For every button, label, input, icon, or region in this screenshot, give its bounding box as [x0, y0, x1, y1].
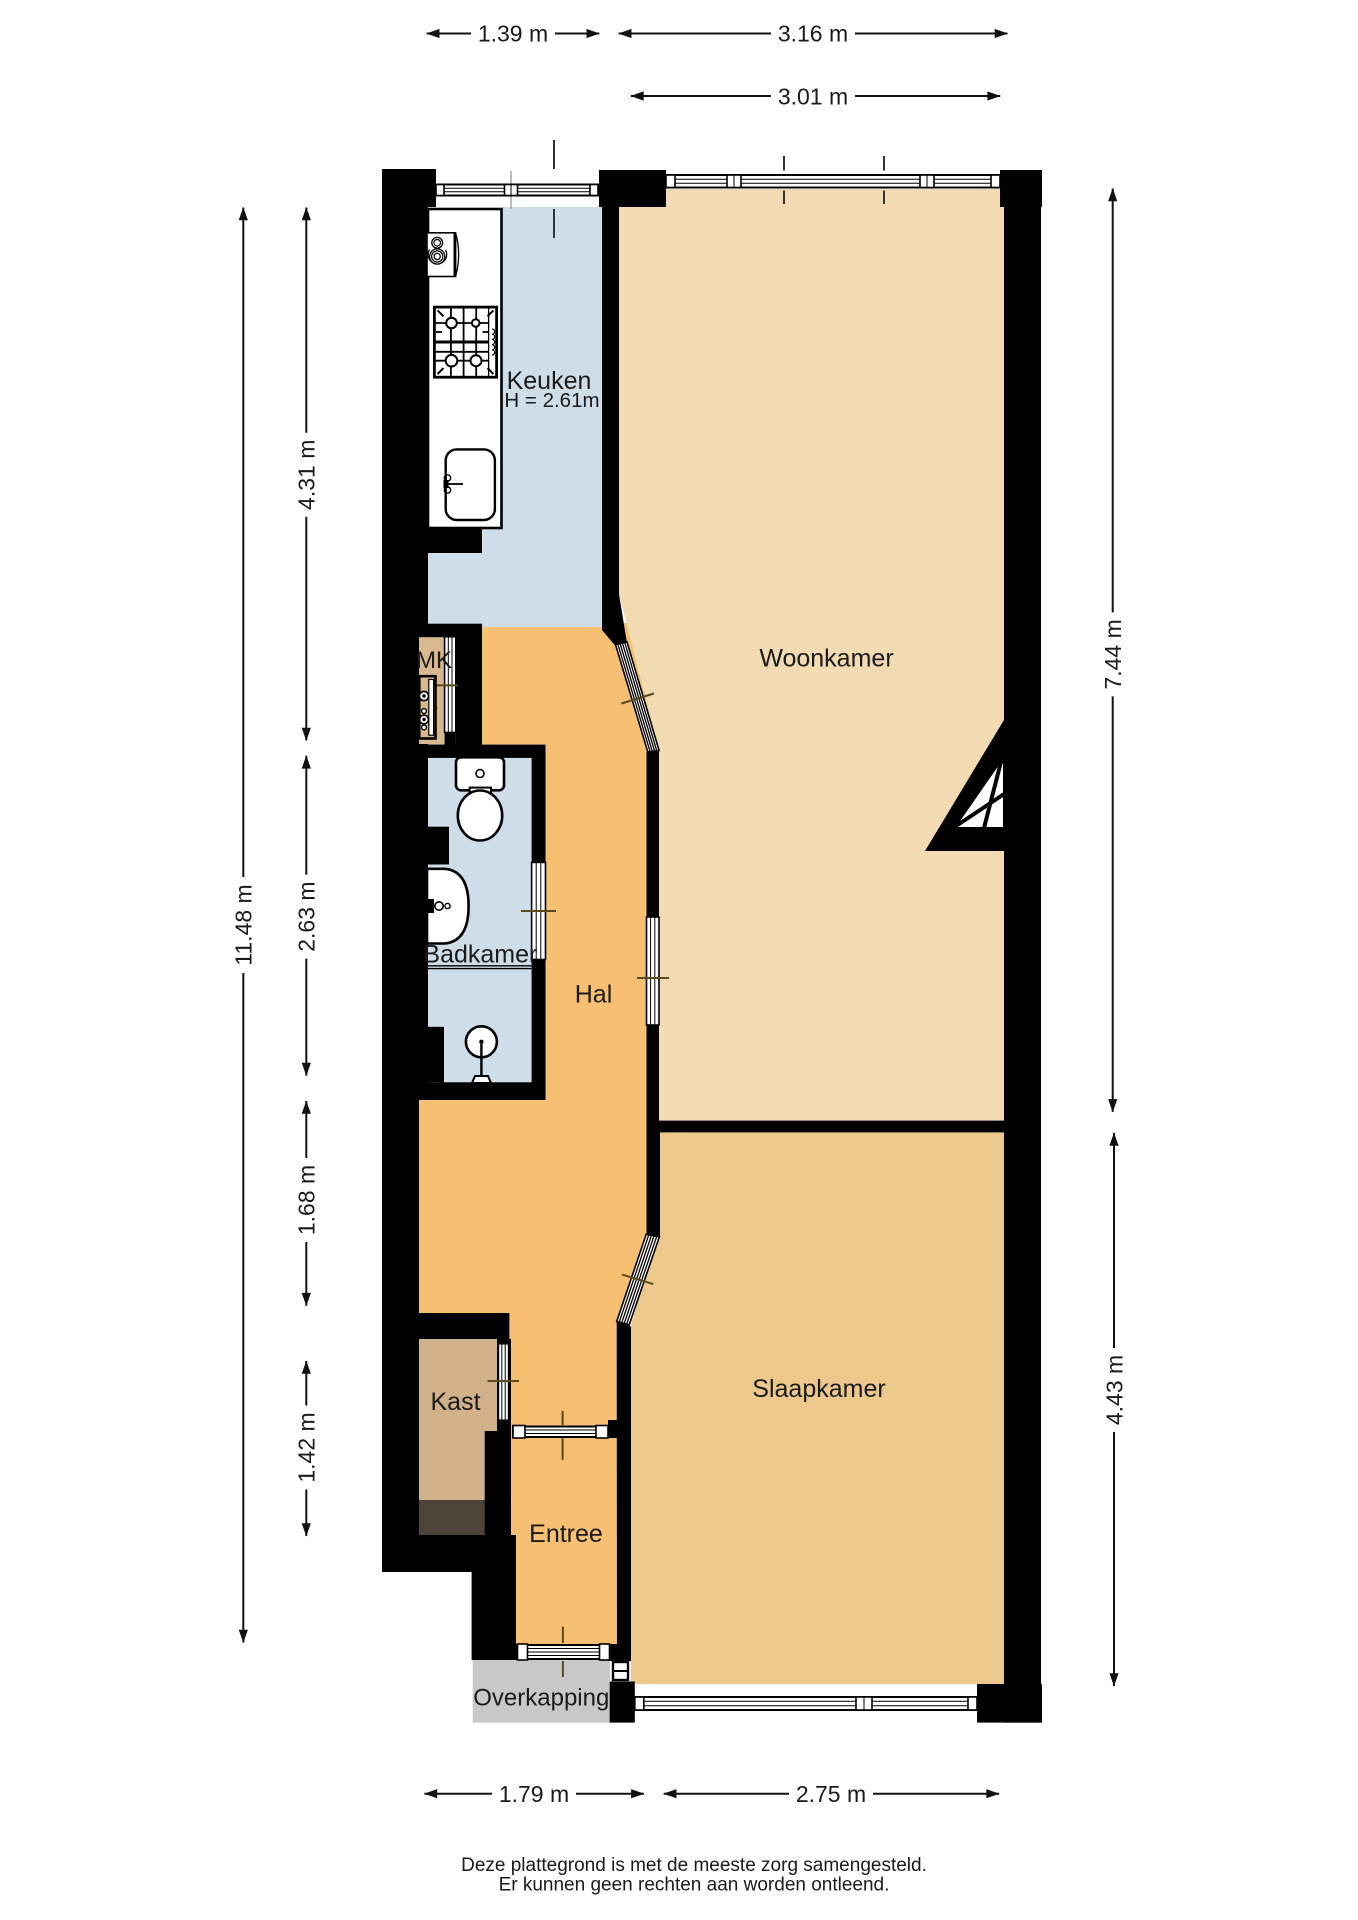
svg-text:H = 2.61m: H = 2.61m — [504, 389, 599, 412]
svg-text:Badkamer: Badkamer — [423, 941, 537, 969]
svg-text:1.79 m: 1.79 m — [499, 1781, 569, 1807]
svg-text:4.31 m: 4.31 m — [294, 440, 320, 510]
svg-text:Hal: Hal — [575, 981, 613, 1009]
svg-text:Er kunnen geen rechten aan wor: Er kunnen geen rechten aan worden ontlee… — [499, 1875, 890, 1896]
svg-text:Slaapkamer: Slaapkamer — [752, 1375, 885, 1403]
svg-text:Overkapping: Overkapping — [473, 1685, 609, 1712]
svg-text:11.48 m: 11.48 m — [231, 884, 257, 965]
svg-text:2.75 m: 2.75 m — [796, 1781, 866, 1807]
svg-text:7.44 m: 7.44 m — [1100, 619, 1126, 689]
svg-text:Kast: Kast — [430, 1388, 480, 1416]
svg-text:4.43 m: 4.43 m — [1101, 1355, 1127, 1425]
svg-text:2.63 m: 2.63 m — [294, 881, 320, 951]
svg-text:MK: MK — [416, 647, 452, 674]
svg-text:1.68 m: 1.68 m — [294, 1165, 320, 1235]
svg-text:1.39 m: 1.39 m — [478, 21, 548, 47]
svg-text:1.42 m: 1.42 m — [294, 1412, 320, 1482]
svg-text:Woonkamer: Woonkamer — [759, 645, 893, 673]
svg-text:3.16 m: 3.16 m — [778, 21, 848, 47]
svg-text:3.01 m: 3.01 m — [778, 83, 848, 109]
svg-text:Deze plattegrond is met de mee: Deze plattegrond is met de meeste zorg s… — [461, 1855, 927, 1876]
svg-text:Entree: Entree — [529, 1520, 603, 1548]
